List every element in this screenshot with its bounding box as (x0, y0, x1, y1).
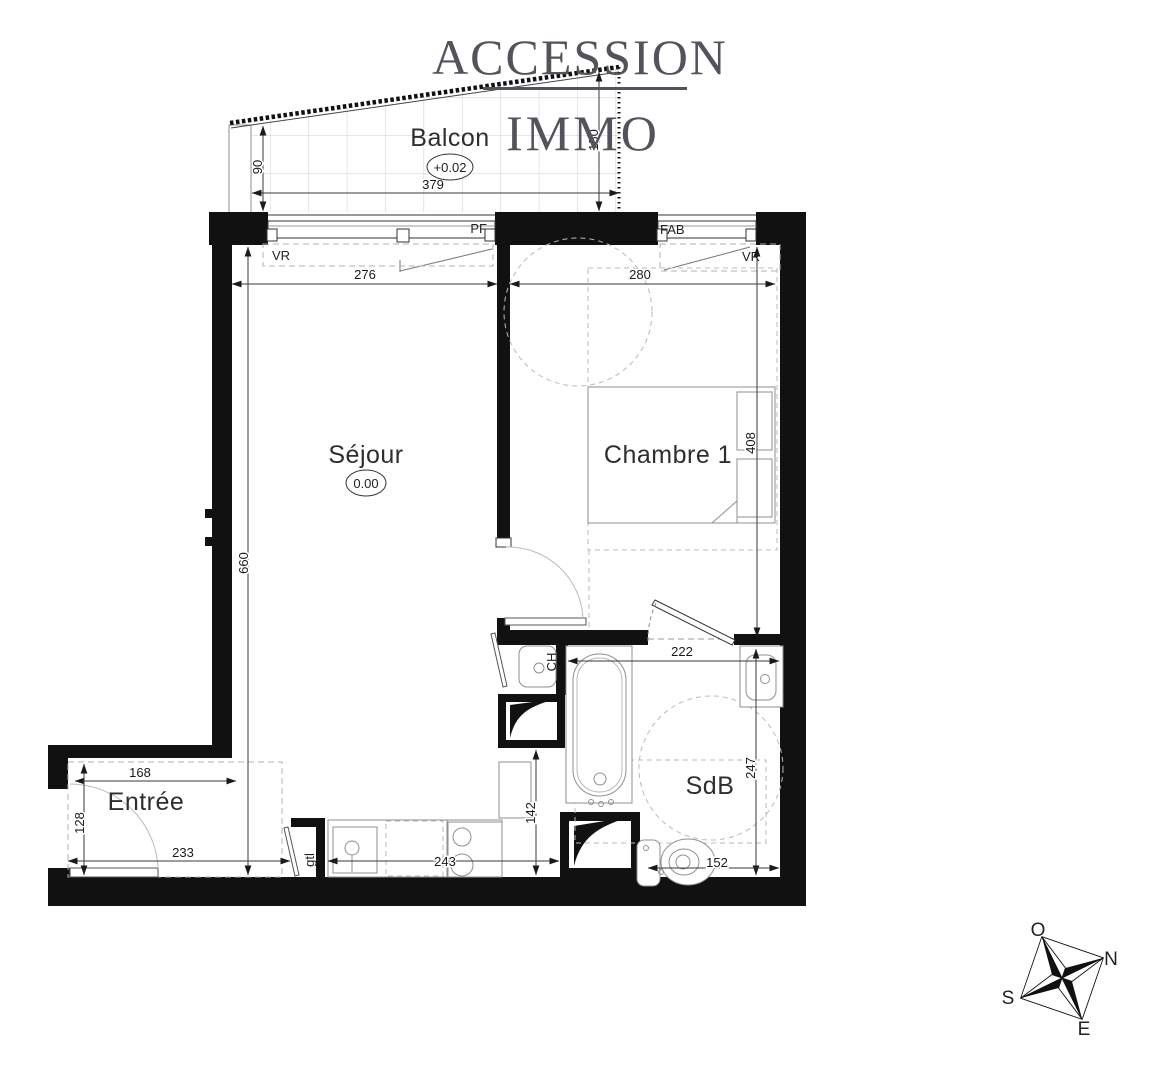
balcon-elevation: +0.02 (434, 160, 467, 175)
floor-plan-page: 90 379 150 276 280 660 408 222 (0, 0, 1160, 1080)
wall-sdb-north-left (497, 630, 648, 645)
svg-text:247: 247 (743, 757, 758, 779)
kitchen-counter (328, 820, 502, 877)
balcony-side-divider (229, 125, 251, 213)
compass-west: O (1031, 920, 1046, 941)
dim-entree-width: 168 (75, 765, 236, 781)
chambre-door-jamb (496, 538, 511, 547)
compass-north: N (1104, 949, 1118, 970)
svg-text:233: 233 (172, 845, 194, 860)
compass-south: S (1002, 988, 1015, 1009)
gtl-label: gtl (302, 853, 317, 867)
wall-left-nub-2 (205, 537, 212, 546)
sdb-clearance-circle (639, 696, 783, 840)
shutter-label-vr-left: VR (272, 248, 290, 263)
svg-text:276: 276 (354, 267, 376, 282)
floor-plan-canvas: 90 379 150 276 280 660 408 222 (0, 0, 1160, 1080)
logo-line2: IMMO (506, 105, 660, 161)
dim-entree-length: 233 (68, 845, 290, 861)
wall-left (212, 243, 232, 757)
room-label-sdb: SdB (686, 772, 735, 800)
svg-text:408: 408 (743, 432, 758, 454)
kitchen-sink (333, 827, 377, 873)
svg-text:280: 280 (629, 267, 651, 282)
svg-text:243: 243 (434, 854, 456, 869)
gtl-door-leaf (284, 827, 299, 876)
svg-text:142: 142 (523, 802, 538, 824)
entrance-door-leaf (70, 868, 158, 877)
compass-east: E (1078, 1019, 1091, 1040)
logo-line1: ACCESSION (432, 29, 728, 85)
svg-text:660: 660 (236, 552, 251, 574)
chambre-clearance-circle (504, 238, 652, 386)
wall-right (780, 212, 806, 906)
cooktop-burner-1 (453, 828, 471, 846)
dim-cuisine-run: 243 (328, 854, 559, 869)
dim-chambre-length: 408 (743, 247, 758, 637)
sejour-elevation: 0.00 (353, 476, 378, 491)
kitchen-tap (345, 841, 359, 855)
gtl-side-bar (316, 818, 325, 877)
svg-text:222: 222 (671, 644, 693, 659)
wall-top-left-corner (209, 212, 268, 245)
svg-text:90: 90 (250, 160, 265, 174)
sdb-door-leaf (652, 600, 735, 645)
svg-text:128: 128 (72, 812, 87, 834)
window-label-pf: PF (470, 221, 487, 236)
room-label-sejour: Séjour (328, 441, 403, 469)
wall-partition-sejour-chambre (497, 245, 510, 543)
logo-divider (483, 87, 687, 90)
ch-label: CH (544, 653, 559, 672)
chambre-door-leaf (505, 618, 586, 625)
svg-text:168: 168 (129, 765, 151, 780)
chambre-door-swing (506, 547, 583, 618)
water-heater-dial (534, 663, 544, 673)
dim-sejour-length: 660 (236, 247, 251, 875)
room-label-balcon: Balcon (410, 124, 489, 152)
compass-star-icon (1000, 916, 1123, 1039)
shutter-label-vr-right: VR (742, 249, 760, 264)
room-label-chambre: Chambre 1 (604, 441, 732, 469)
wall-entry-step (48, 745, 232, 758)
dim-sejour-width: 276 (232, 267, 497, 284)
wall-entry-jamb (48, 757, 68, 789)
dim-chambre-width: 280 (510, 267, 775, 284)
window-label-fab: FAB (660, 222, 685, 237)
room-label-entree: Entrée (108, 788, 185, 816)
window-pf (263, 215, 495, 272)
wall-top-middle (495, 212, 658, 245)
svg-text:152: 152 (706, 855, 728, 870)
bed-pillow-2 (737, 459, 772, 517)
wall-left-nub-1 (205, 509, 212, 518)
compass-rose: O N S E (1000, 916, 1123, 1040)
